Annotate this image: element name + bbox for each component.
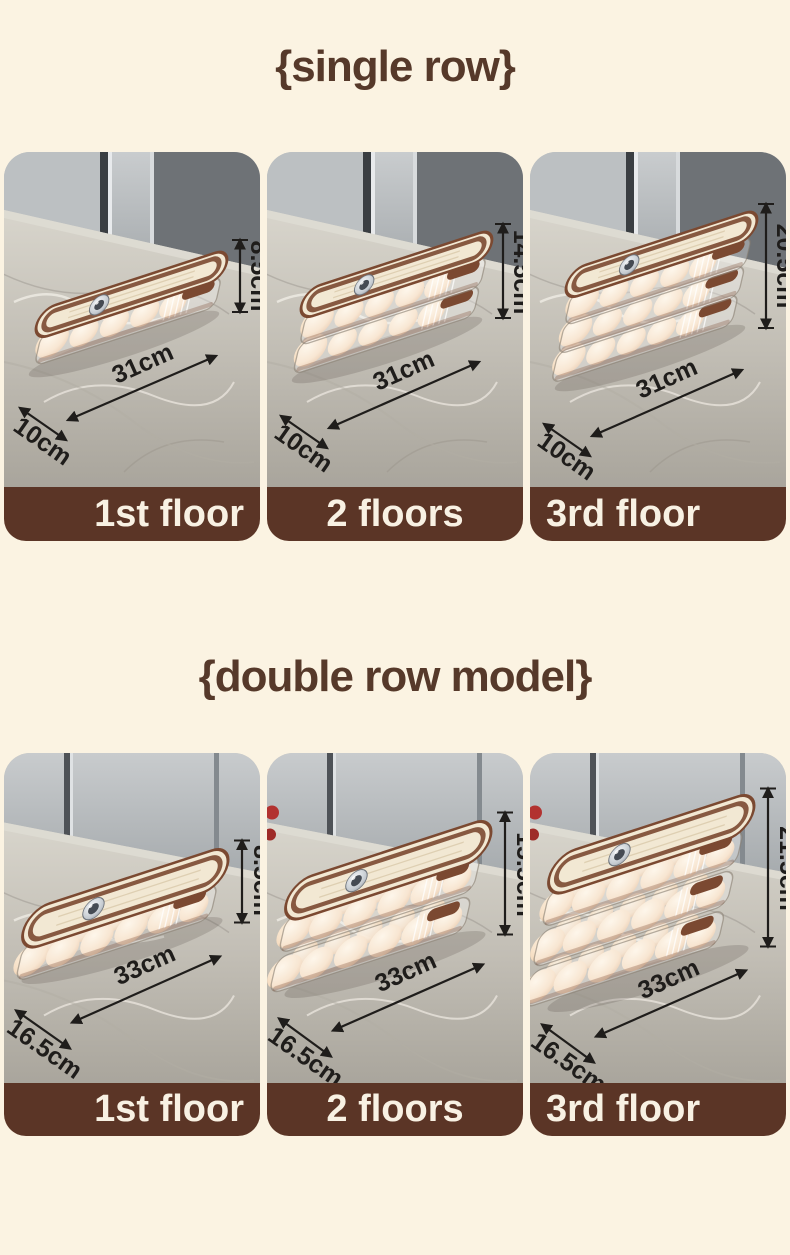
section-title: {double row model} <box>0 541 790 704</box>
product-photo: 14.5cm 31cm 10cm <box>267 152 523 487</box>
floor-label: 1st floor <box>94 1088 244 1131</box>
egg-dispenser-photo: 21.5cm 33cm 16.5cm <box>530 753 786 1083</box>
product-card-double-3: 21.5cm 33cm 16.5cm 3rd floor <box>530 753 786 1136</box>
egg-dispenser-photo: 15.5cm 33cm 16.5cm <box>267 753 523 1083</box>
product-photo: 21.5cm 33cm 16.5cm <box>530 753 786 1083</box>
product-photo: 8.5cm 33cm 16.5cm <box>4 753 260 1083</box>
section-single-row: {single row} 8.5cm <box>0 0 790 541</box>
floor-label-bar: 1st floor <box>4 1083 260 1136</box>
floor-label: 3rd floor <box>546 493 700 536</box>
product-photo: 8.5cm 31cm 10cm <box>4 152 260 487</box>
product-row: 8.5cm 31cm 10cm 1st floor <box>0 152 790 541</box>
height-label: 15.5cm <box>511 832 523 917</box>
egg-dispenser-photo: 20.5cm 31cm 10cm <box>530 152 786 487</box>
product-card-single-3: 20.5cm 31cm 10cm 3rd floor <box>530 152 786 541</box>
height-label: 21.5cm <box>774 826 786 911</box>
product-card-double-2: 15.5cm 33cm 16.5cm 2 floors <box>267 753 523 1136</box>
product-card-single-1: 8.5cm 31cm 10cm 1st floor <box>4 152 260 541</box>
floor-label-bar: 3rd floor <box>530 487 786 541</box>
product-row: 8.5cm 33cm 16.5cm 1st floor <box>0 753 790 1136</box>
egg-dispenser-photo: 8.5cm 33cm 16.5cm <box>4 753 260 1083</box>
floor-label: 2 floors <box>326 493 463 536</box>
egg-dispenser-photo: 8.5cm 31cm 10cm <box>4 152 260 487</box>
height-label: 20.5cm <box>771 224 786 309</box>
height-label: 8.5cm <box>248 845 260 916</box>
floor-label: 3rd floor <box>546 1088 700 1131</box>
egg-dispenser-photo: 14.5cm 31cm 10cm <box>267 152 523 487</box>
product-card-single-2: 14.5cm 31cm 10cm 2 floors <box>267 152 523 541</box>
section-title: {single row} <box>0 0 790 94</box>
height-label: 14.5cm <box>508 230 523 315</box>
floor-label-bar: 1st floor <box>4 487 260 541</box>
floor-label-bar: 2 floors <box>267 1083 523 1136</box>
floor-label-bar: 2 floors <box>267 487 523 541</box>
floor-label: 1st floor <box>94 493 244 536</box>
product-card-double-1: 8.5cm 33cm 16.5cm 1st floor <box>4 753 260 1136</box>
product-infographic: {single row} 8.5cm <box>0 0 790 1255</box>
product-photo: 15.5cm 33cm 16.5cm <box>267 753 523 1083</box>
height-label: 8.5cm <box>245 241 260 312</box>
floor-label-bar: 3rd floor <box>530 1083 786 1136</box>
product-photo: 20.5cm 31cm 10cm <box>530 152 786 487</box>
section-double-row: {double row model} 8. <box>0 541 790 1136</box>
floor-label: 2 floors <box>326 1088 463 1131</box>
